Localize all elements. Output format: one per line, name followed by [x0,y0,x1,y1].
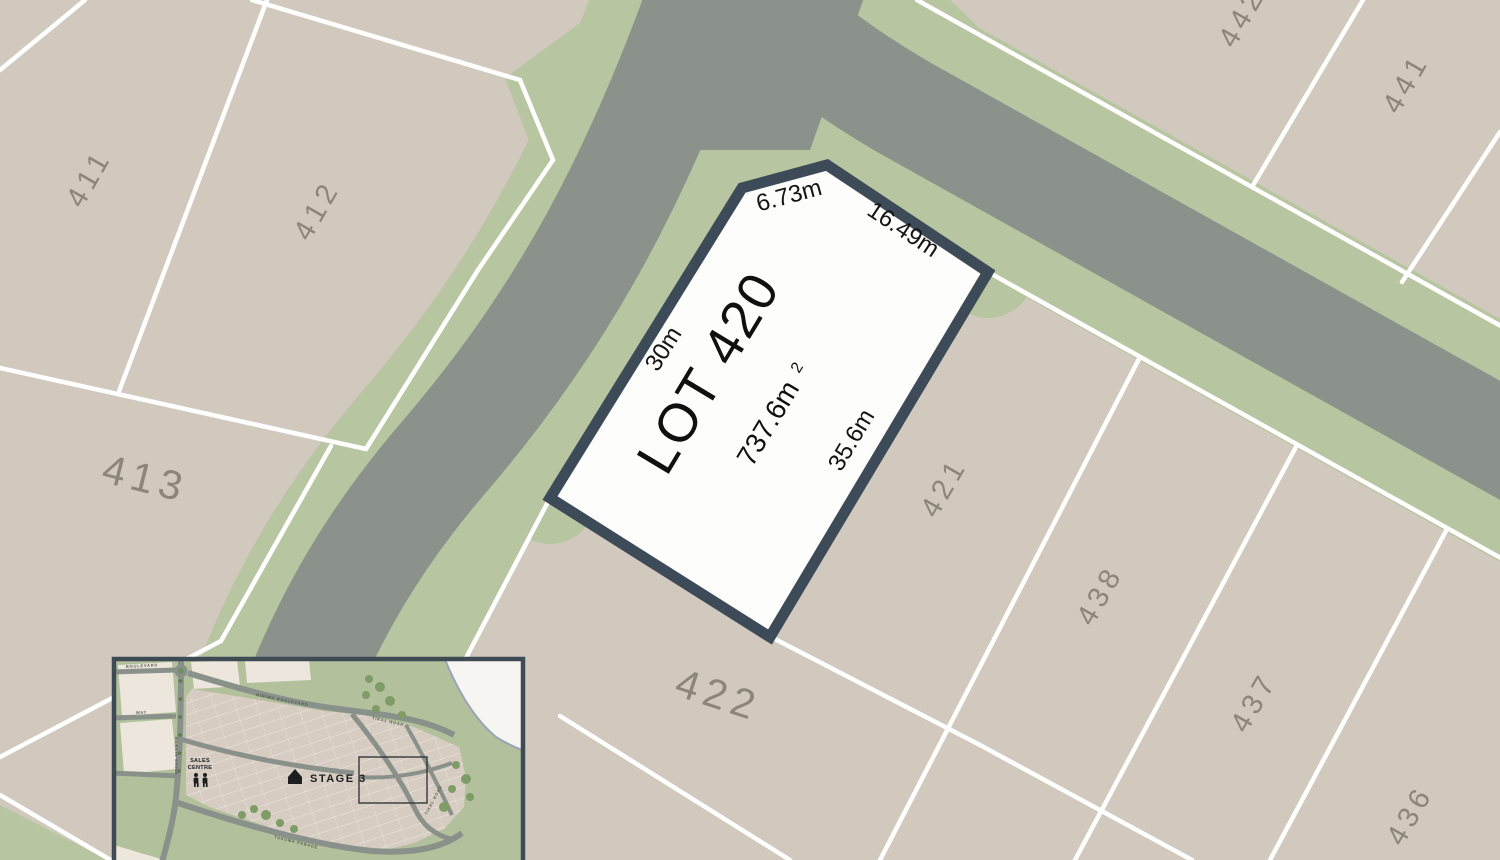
inset-map: SALES CENTRE STAGE 3 BIRIWA BOU [112,655,525,860]
stage3-label: STAGE 3 [310,773,367,785]
subdivision-map: 411 412 413 421 422 438 437 436 441 442 … [0,0,1500,860]
road-label-barkin: BARKIN DRIVE [174,737,179,776]
road-label-way-stub: WAY [136,710,147,715]
lot-map-screenshot: 411 412 413 421 422 438 437 436 441 442 … [0,0,1500,860]
sales-centre-label-line1: SALES [190,758,210,764]
sales-centre-label-line2: CENTRE [188,765,212,771]
